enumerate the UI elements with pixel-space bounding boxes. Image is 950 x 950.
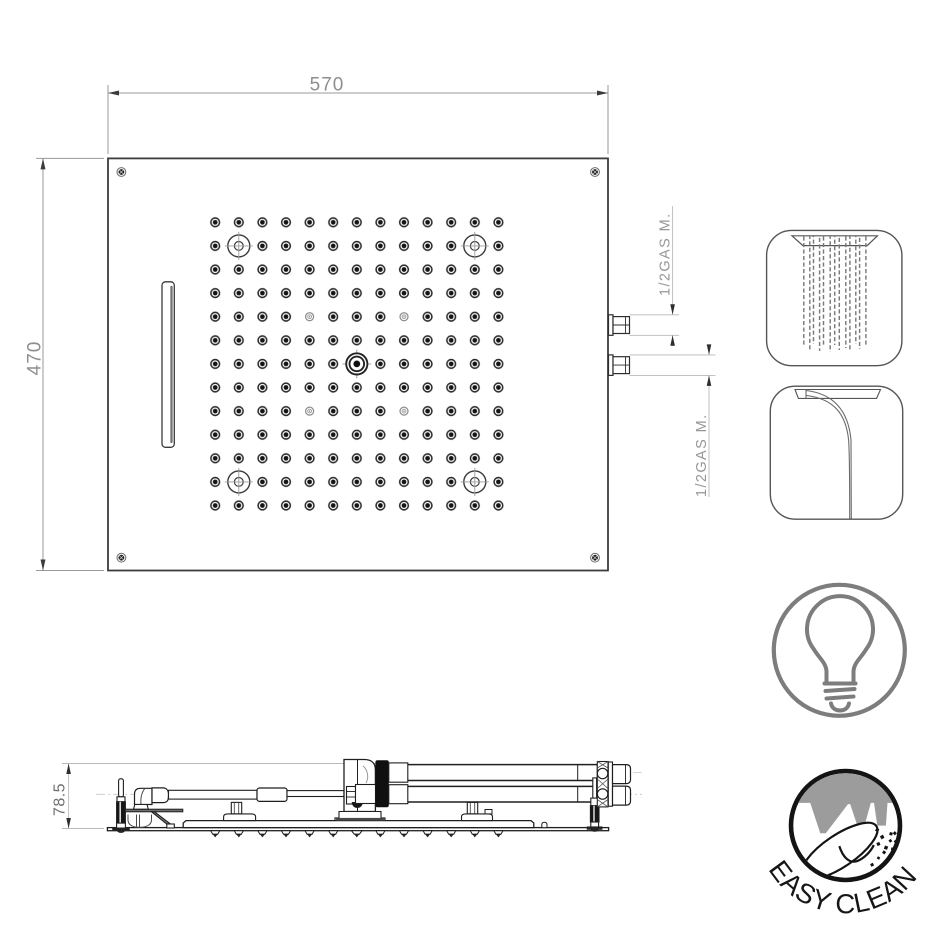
svg-text:470: 470: [25, 341, 46, 376]
svg-text:1/2GAS M.: 1/2GAS M.: [694, 413, 710, 497]
svg-text:570: 570: [310, 75, 345, 96]
svg-text:78.5: 78.5: [52, 783, 69, 816]
svg-text:1/2GAS M.: 1/2GAS M.: [658, 212, 674, 296]
